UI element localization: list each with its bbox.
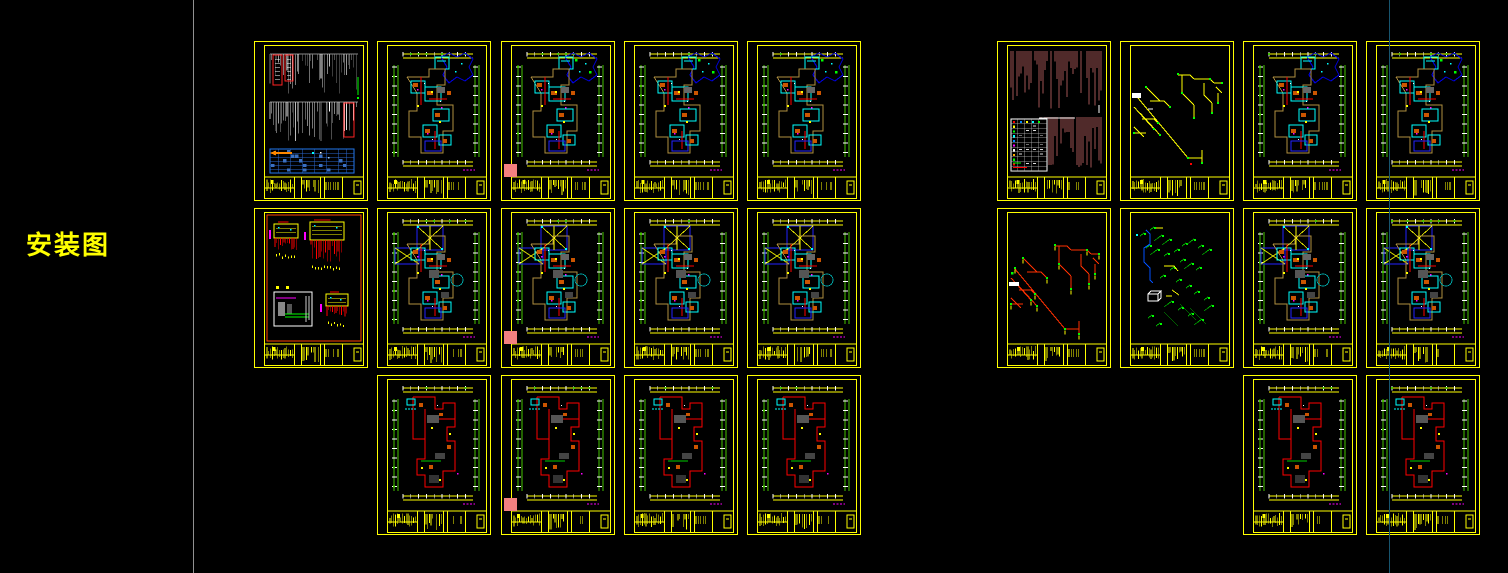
- drawing-sheet-wiring-plan[interactable]: [1243, 375, 1357, 535]
- riser-green-drawing: [1120, 208, 1234, 368]
- drawing-sheet-roof-plan[interactable]: [501, 208, 615, 368]
- drawing-sheet-roof-plan[interactable]: [624, 208, 738, 368]
- roof-plan-drawing: [624, 208, 738, 368]
- design-notes-drawing: [254, 41, 368, 201]
- wiring-plan-drawing: [1243, 375, 1357, 535]
- riser-yellow-drawing: [1120, 41, 1234, 201]
- drawing-sheet-floor-plan[interactable]: [501, 41, 615, 201]
- floor-plan-drawing: [747, 41, 861, 201]
- floor-plan-drawing: [624, 41, 738, 201]
- drawing-sheet-wiring-plan[interactable]: [1366, 375, 1480, 535]
- spec-notes-drawing: [997, 41, 1111, 201]
- floor-plan-drawing: [1366, 41, 1480, 201]
- drawing-sheet-riser-yellow[interactable]: [1120, 41, 1234, 201]
- riser-red-drawing: [997, 208, 1111, 368]
- drawing-sheet-floor-plan[interactable]: [1366, 41, 1480, 201]
- drawing-sheet-floor-plan[interactable]: [377, 41, 491, 201]
- roof-plan-drawing: [1243, 208, 1357, 368]
- drawing-sheet-riser-green[interactable]: [1120, 208, 1234, 368]
- roof-plan-drawing: [747, 208, 861, 368]
- wiring-plan-drawing: [377, 375, 491, 535]
- drawing-sheet-floor-plan[interactable]: [747, 41, 861, 201]
- wiring-plan-drawing: [747, 375, 861, 535]
- drawing-sheet-roof-plan[interactable]: [1366, 208, 1480, 368]
- cad-model-canvas[interactable]: 安装图: [0, 0, 1508, 573]
- drawing-set-label: 安装图: [26, 233, 110, 259]
- drawing-sheet-spec-notes[interactable]: [997, 41, 1111, 201]
- floor-plan-drawing: [1243, 41, 1357, 201]
- drawing-sheet-floor-plan[interactable]: [1243, 41, 1357, 201]
- wiring-plan-drawing: [1366, 375, 1480, 535]
- drawing-sheet-wiring-plan[interactable]: [501, 375, 615, 535]
- roof-plan-drawing: [1366, 208, 1480, 368]
- drawing-sheet-roof-plan[interactable]: [377, 208, 491, 368]
- drawing-sheet-roof-plan[interactable]: [747, 208, 861, 368]
- left-divider-line: [193, 0, 194, 573]
- floor-plan-drawing: [501, 41, 615, 201]
- roof-plan-drawing: [377, 208, 491, 368]
- drawing-sheet-wiring-plan[interactable]: [747, 375, 861, 535]
- wiring-plan-drawing: [624, 375, 738, 535]
- drawing-sheet-wiring-plan[interactable]: [624, 375, 738, 535]
- floor-plan-drawing: [377, 41, 491, 201]
- drawing-sheet-roof-plan[interactable]: [1243, 208, 1357, 368]
- wiring-plan-drawing: [501, 375, 615, 535]
- vertical-guide-line: [1389, 0, 1390, 573]
- drawing-sheet-wiring-plan[interactable]: [377, 375, 491, 535]
- drawing-sheet-floor-plan[interactable]: [624, 41, 738, 201]
- drawing-sheet-riser-red[interactable]: [997, 208, 1111, 368]
- drawing-sheet-design-notes[interactable]: [254, 41, 368, 201]
- electrical-detail-drawing: [254, 208, 368, 368]
- drawing-sheet-electrical-detail[interactable]: [254, 208, 368, 368]
- roof-plan-drawing: [501, 208, 615, 368]
